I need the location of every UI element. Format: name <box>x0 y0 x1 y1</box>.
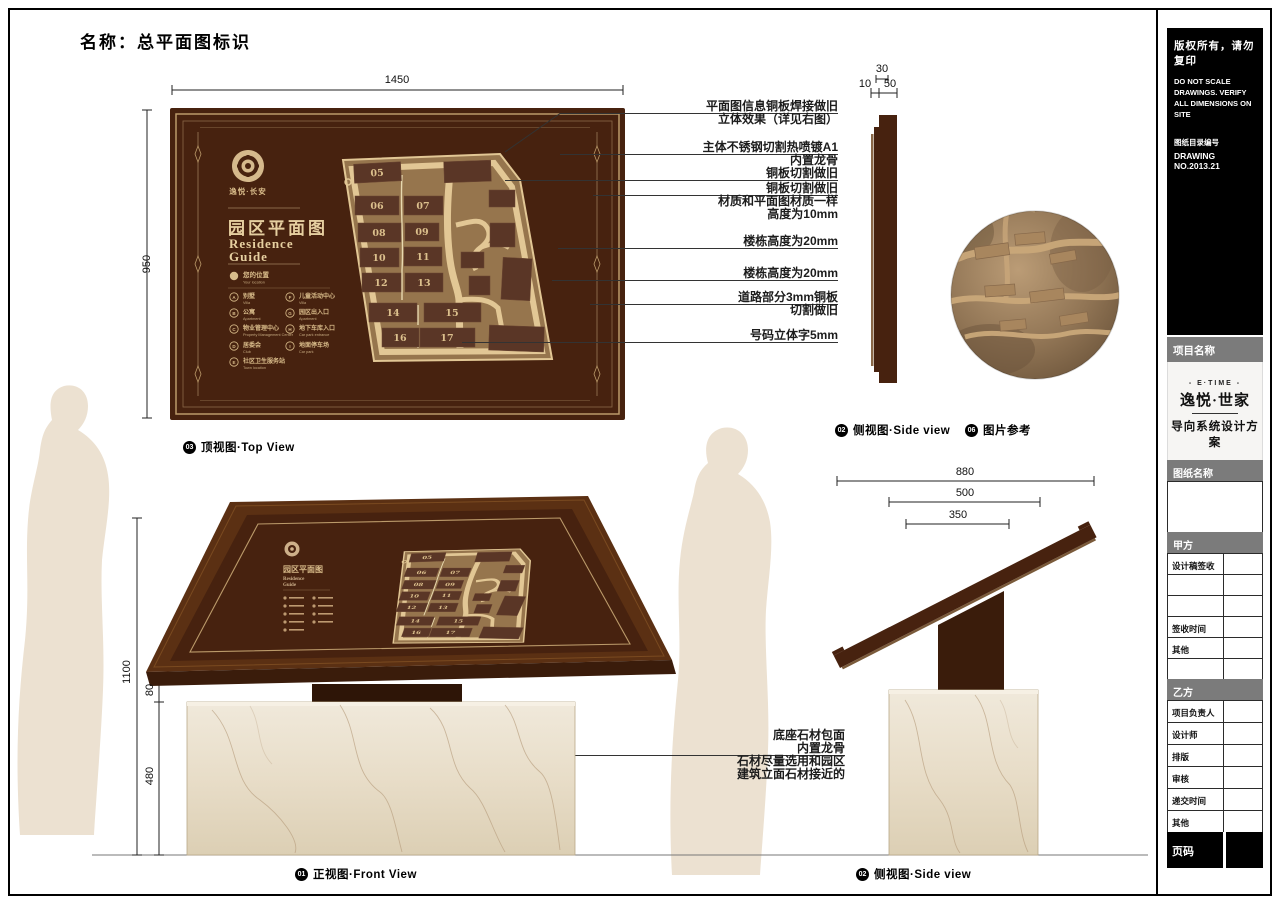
drawing-sheet: 05 06 07 08 09 10 11 12 13 14 15 16 17 <box>0 0 1280 905</box>
sheet-border <box>8 8 1272 896</box>
sheet-divider <box>1156 8 1158 896</box>
